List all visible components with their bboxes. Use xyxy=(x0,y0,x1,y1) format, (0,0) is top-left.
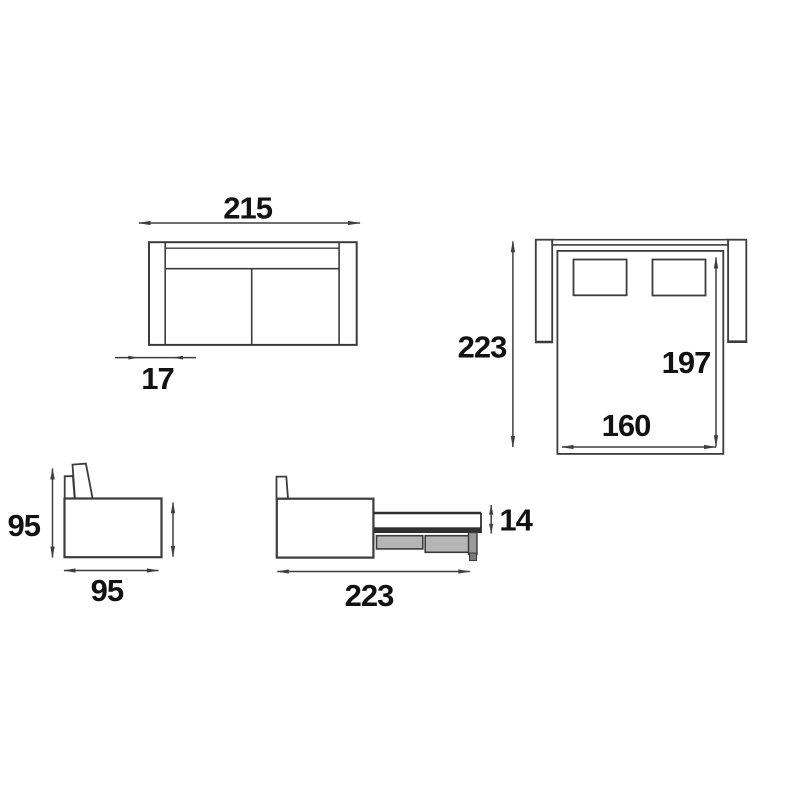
svg-text:17: 17 xyxy=(141,361,173,396)
svg-text:197: 197 xyxy=(662,345,711,380)
svg-text:160: 160 xyxy=(602,408,651,443)
svg-text:95: 95 xyxy=(91,573,124,608)
svg-text:14: 14 xyxy=(499,503,533,538)
svg-text:215: 215 xyxy=(223,191,272,226)
svg-text:95: 95 xyxy=(8,508,41,543)
svg-text:223: 223 xyxy=(458,330,507,365)
svg-text:223: 223 xyxy=(345,578,394,613)
